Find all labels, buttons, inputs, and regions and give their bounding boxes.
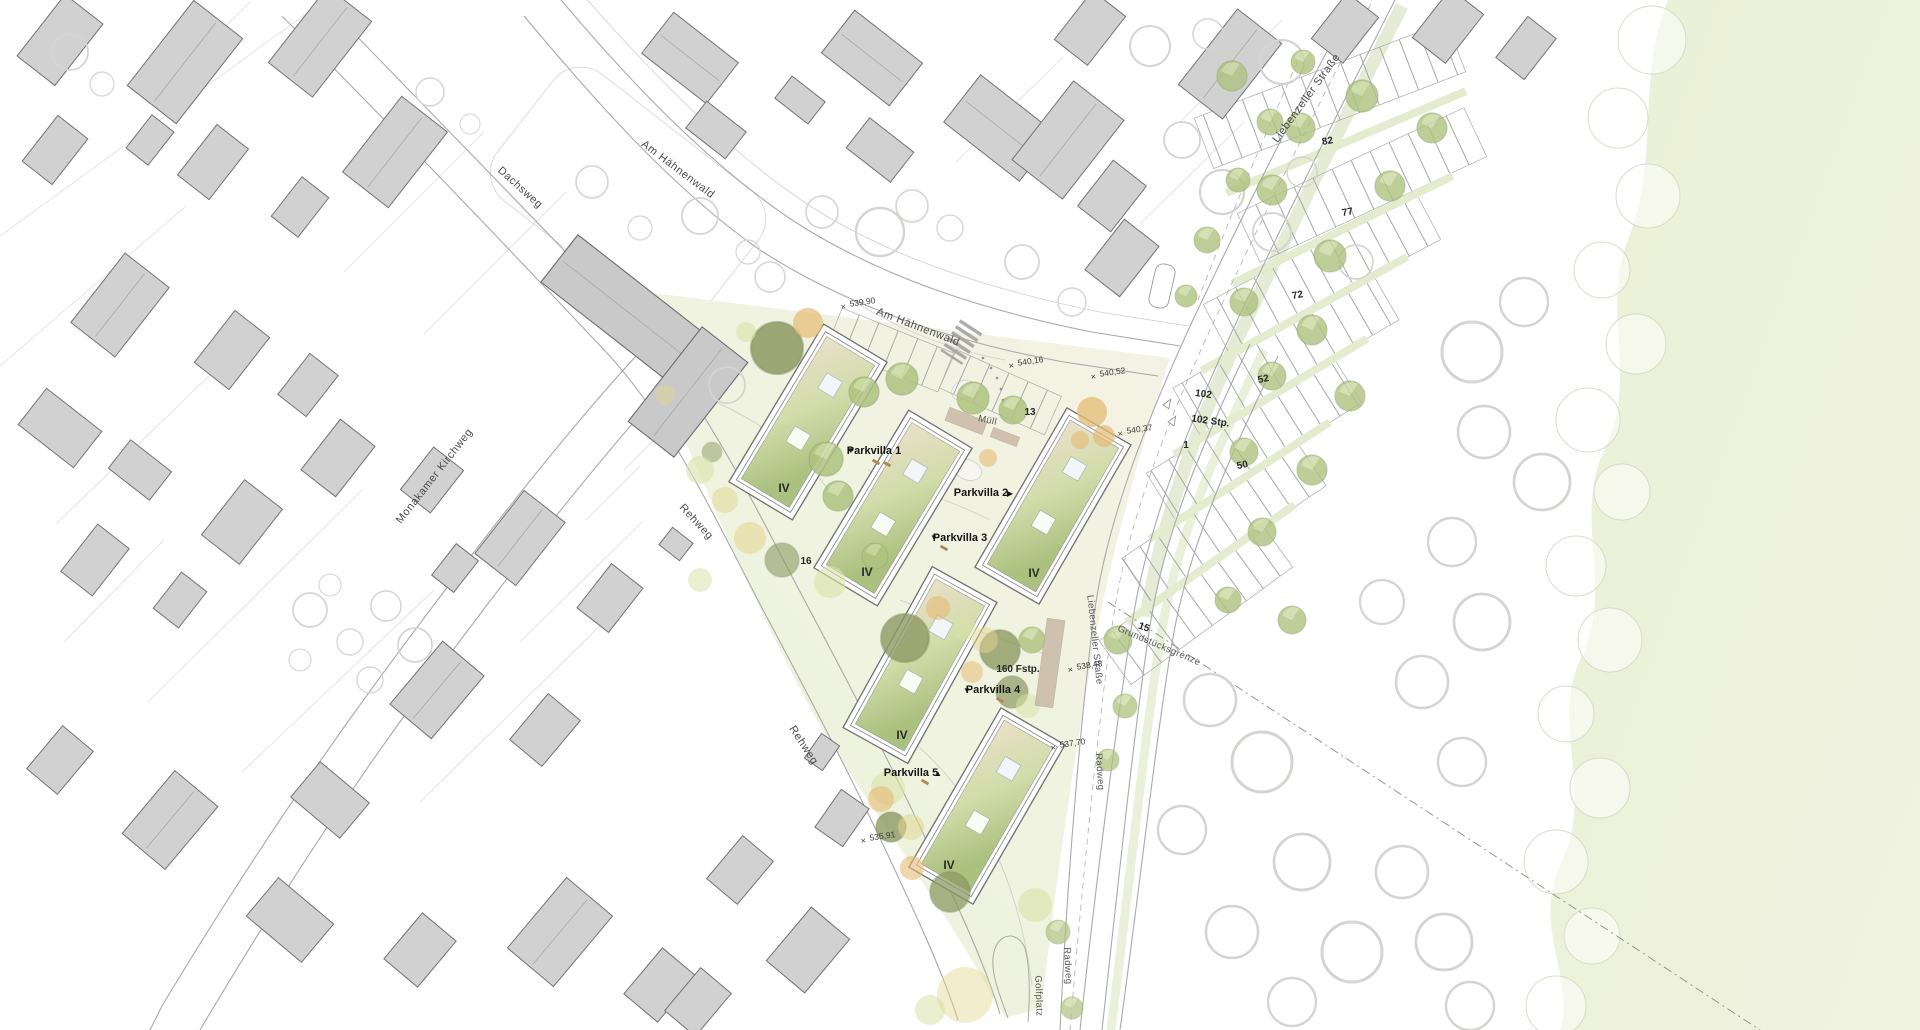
- tree: [849, 377, 879, 407]
- tree: [1335, 381, 1365, 411]
- elevation-cross-icon: ×: [840, 301, 847, 312]
- tree: [1046, 920, 1070, 944]
- tree: [1442, 322, 1502, 382]
- tree: [1376, 846, 1428, 898]
- tree: [1438, 738, 1486, 786]
- storey-count: IV: [1028, 566, 1039, 580]
- existing-building: [153, 572, 207, 628]
- tree: [1538, 686, 1594, 742]
- existing-building: [202, 480, 283, 565]
- tree: [628, 216, 652, 240]
- tree: [1556, 388, 1620, 452]
- tree: [1322, 922, 1382, 982]
- parkvilla-4-label: Parkvilla 4: [966, 684, 1021, 696]
- site-plan-drawing: Dachsweg Am Hähnenwald Am Hähnenwald Mon…: [0, 0, 1920, 1030]
- parking-count-1: 1: [1183, 440, 1189, 451]
- tree: [1458, 406, 1510, 458]
- tree: [1194, 227, 1220, 253]
- existing-building: [71, 253, 169, 357]
- tree: [1232, 732, 1292, 792]
- existing-building: [642, 12, 739, 103]
- existing-building: [18, 388, 101, 467]
- tree: [1093, 425, 1115, 447]
- tree: [1564, 908, 1620, 964]
- tree: [886, 363, 918, 395]
- existing-building: [775, 76, 825, 124]
- existing-building: [301, 419, 375, 497]
- tree: [806, 196, 838, 228]
- tree: [1175, 285, 1197, 307]
- parkvilla-2-label: Parkvilla 2: [954, 487, 1008, 499]
- tree: [823, 481, 853, 511]
- tree: [1058, 288, 1086, 316]
- tree: [1514, 454, 1570, 510]
- existing-building: [268, 0, 371, 97]
- existing-building: [390, 641, 484, 739]
- storey-count: IV: [778, 481, 789, 495]
- meadow-area: [1524, 0, 1920, 1030]
- existing-building: [178, 124, 249, 199]
- elevation-cross-icon: ×: [860, 835, 867, 846]
- tree: [1230, 288, 1258, 316]
- give-way-marking: [1163, 397, 1174, 408]
- tree: [1113, 694, 1137, 718]
- tree: [460, 114, 480, 134]
- tree: [1071, 431, 1089, 449]
- existing-building: [127, 0, 242, 123]
- tree: [319, 574, 341, 596]
- site-plan: Dachsweg Am Hähnenwald Am Hähnenwald Mon…: [0, 0, 1920, 1030]
- tree: [1278, 606, 1306, 634]
- tree: [736, 322, 756, 342]
- tree: [655, 385, 675, 405]
- bike-parking-label: 160 Fstp.: [996, 664, 1040, 675]
- tree: [736, 240, 760, 264]
- tree: [1217, 61, 1247, 91]
- tree: [814, 566, 846, 598]
- tree: [1291, 50, 1315, 74]
- existing-building: [475, 490, 565, 585]
- tree: [1360, 580, 1404, 624]
- tree: [1606, 314, 1666, 374]
- existing-building: [707, 836, 774, 905]
- existing-building: [291, 762, 370, 838]
- tree: [357, 667, 383, 693]
- tree: [293, 593, 327, 627]
- parkvilla-5-label: Parkvilla 5: [884, 767, 938, 779]
- existing-building: [766, 907, 849, 993]
- tree: [979, 449, 997, 467]
- tree: [898, 814, 924, 840]
- tree: [809, 442, 843, 476]
- tree: [1248, 518, 1276, 546]
- tree: [576, 166, 608, 198]
- tree: [1257, 175, 1287, 205]
- entrance-marker-icon: ▶: [1007, 489, 1014, 498]
- elevation-marker: ×539,90: [840, 295, 877, 312]
- tree: [1005, 245, 1039, 279]
- tree: [793, 308, 823, 338]
- tree: [961, 661, 983, 683]
- existing-building: [384, 913, 456, 987]
- tree: [1184, 674, 1236, 726]
- tree: [289, 649, 311, 671]
- street-label-am-haehnenwald: Am Hähnenwald: [639, 138, 717, 201]
- tree: [1416, 914, 1472, 970]
- existing-building: [271, 177, 329, 237]
- tree: [686, 456, 714, 484]
- entrance-marker-icon: ▲: [934, 769, 942, 778]
- tree: [1158, 806, 1206, 854]
- parkvilla-3-label: Parkvilla 3: [933, 532, 987, 544]
- tree: [1019, 627, 1045, 653]
- tree: [1226, 168, 1250, 192]
- existing-building: [194, 310, 269, 389]
- tree: [1454, 594, 1510, 650]
- tree: [371, 591, 401, 621]
- tree: [1274, 834, 1330, 890]
- tree: [1446, 982, 1494, 1030]
- tree: [1618, 6, 1686, 74]
- tree: [1346, 80, 1378, 112]
- tree: [930, 872, 970, 912]
- tree: [937, 967, 993, 1023]
- tree: [937, 215, 963, 241]
- bus-bay: [1147, 262, 1176, 309]
- tree: [1268, 978, 1316, 1026]
- existing-building: [1085, 219, 1159, 297]
- tree: [957, 382, 989, 414]
- svg-text:539,90: 539,90: [849, 295, 876, 309]
- existing-building: [1054, 0, 1125, 65]
- parking-count-13: 13: [1024, 407, 1036, 418]
- tree: [1130, 26, 1170, 66]
- tree: [881, 614, 929, 662]
- street-label-monakamer-kirchweg: Monakamer Kirchweg: [394, 426, 476, 526]
- tree: [688, 568, 712, 592]
- storey-count: IV: [943, 858, 954, 872]
- tree: [1215, 587, 1241, 613]
- tree: [868, 786, 894, 812]
- existing-building: [1078, 160, 1147, 232]
- storey-count: IV: [861, 565, 872, 579]
- tree: [972, 627, 998, 653]
- tree: [896, 190, 928, 222]
- existing-building: [22, 115, 88, 184]
- elevation-marker: ×535,91: [860, 829, 897, 846]
- existing-building: [246, 878, 333, 963]
- existing-building: [507, 877, 612, 986]
- tree: [1061, 997, 1083, 1019]
- tree: [1570, 758, 1630, 818]
- tree: [1297, 315, 1327, 345]
- tree: [1500, 278, 1548, 326]
- existing-building: [686, 101, 746, 159]
- tree: [416, 78, 444, 106]
- existing-building: [17, 0, 103, 86]
- tree: [337, 629, 363, 655]
- parking-count-16: 16: [800, 556, 812, 567]
- area-label-golfplatz: Golfplatz: [1032, 975, 1044, 1016]
- tree: [1428, 518, 1476, 566]
- existing-building: [278, 353, 338, 416]
- tree: [1396, 656, 1448, 708]
- tree: [1206, 906, 1258, 958]
- street-label-radweg: Radweg: [1061, 947, 1074, 985]
- existing-building: [61, 524, 129, 596]
- tree: [712, 487, 738, 513]
- tree: [900, 856, 924, 880]
- tree: [90, 72, 114, 96]
- tree: [765, 543, 799, 577]
- tree: [1574, 242, 1630, 298]
- parkvilla-1-label: Parkvilla 1: [847, 445, 901, 457]
- existing-building: [27, 726, 94, 795]
- tree: [1546, 536, 1606, 596]
- existing-building: [1496, 16, 1556, 79]
- tree: [1417, 113, 1447, 143]
- tree: [1164, 122, 1200, 158]
- tree: [1616, 164, 1680, 228]
- tree: [1077, 397, 1107, 427]
- existing-building: [122, 771, 218, 870]
- tree: [1314, 240, 1346, 272]
- existing-building: [126, 115, 174, 165]
- tree: [1375, 171, 1405, 201]
- tree: [1018, 888, 1052, 922]
- tree: [999, 396, 1027, 424]
- tree: [926, 596, 950, 620]
- existing-building: [577, 564, 643, 633]
- tree: [952, 616, 976, 640]
- existing-building: [432, 544, 479, 593]
- tree: [1524, 830, 1588, 894]
- tree: [755, 262, 785, 292]
- tree: [1594, 464, 1650, 520]
- tree: [856, 208, 904, 256]
- street-label-radweg: Radweg: [1093, 753, 1107, 791]
- tree: [398, 628, 432, 662]
- tree: [1588, 88, 1648, 148]
- existing-building: [108, 440, 171, 500]
- tree: [1578, 608, 1642, 672]
- existing-building: [659, 527, 693, 560]
- tree: [1526, 976, 1586, 1030]
- tree: [1297, 455, 1327, 485]
- existing-building: [821, 10, 922, 105]
- storey-count: IV: [896, 728, 907, 742]
- existing-building: [846, 118, 914, 182]
- tree: [734, 522, 766, 554]
